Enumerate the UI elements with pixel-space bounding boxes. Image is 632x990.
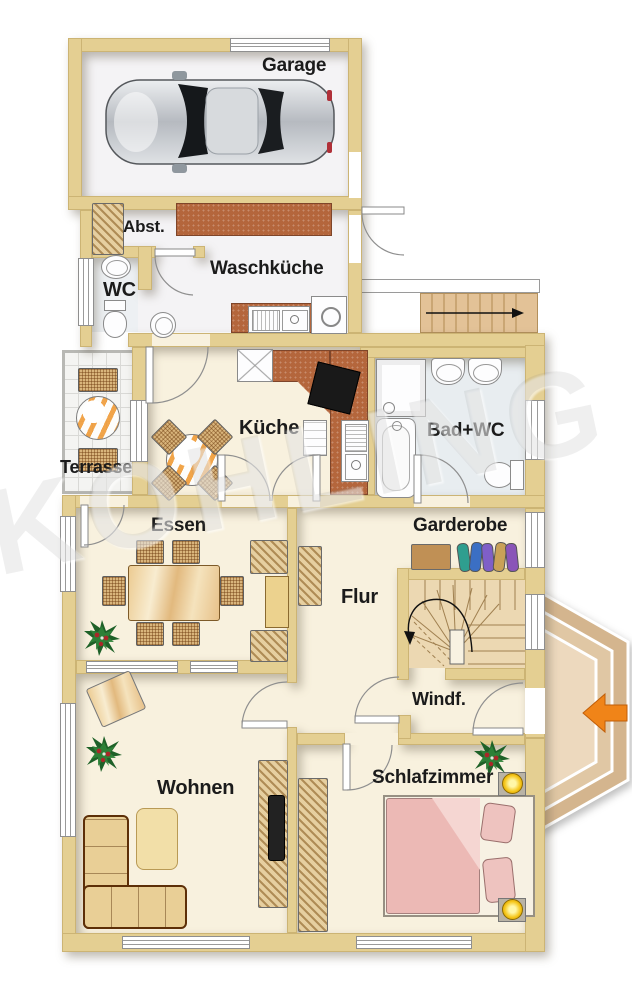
entrance-arrow xyxy=(583,694,627,732)
room-label-terrasse: Terrasse xyxy=(60,457,132,478)
stair-treads xyxy=(409,580,525,664)
stair-newel xyxy=(450,630,464,664)
room-label-abstellraum: Abst. xyxy=(123,217,165,237)
room-label-wohnen: Wohnen xyxy=(157,777,234,800)
room-label-schlafzimmer: Schlafzimmer xyxy=(372,767,493,789)
overlay-layer xyxy=(0,0,632,990)
plant xyxy=(86,736,122,772)
plant xyxy=(84,620,120,656)
floor-plan: Garage Abst. WC Waschküche Terrasse Küch… xyxy=(0,0,632,990)
room-label-garage: Garage xyxy=(262,55,326,77)
room-label-flur: Flur xyxy=(341,586,378,609)
stairs-up-arrow xyxy=(426,308,524,318)
room-label-waschkueche: Waschküche xyxy=(210,258,323,280)
room-label-wc: WC xyxy=(103,279,136,302)
room-label-bad-wc: Bad+WC xyxy=(427,420,504,442)
room-label-windfang: Windf. xyxy=(412,689,466,710)
room-label-essen: Essen xyxy=(151,515,206,537)
room-label-garderobe: Garderobe xyxy=(413,515,507,537)
room-label-kueche: Küche xyxy=(239,417,299,440)
